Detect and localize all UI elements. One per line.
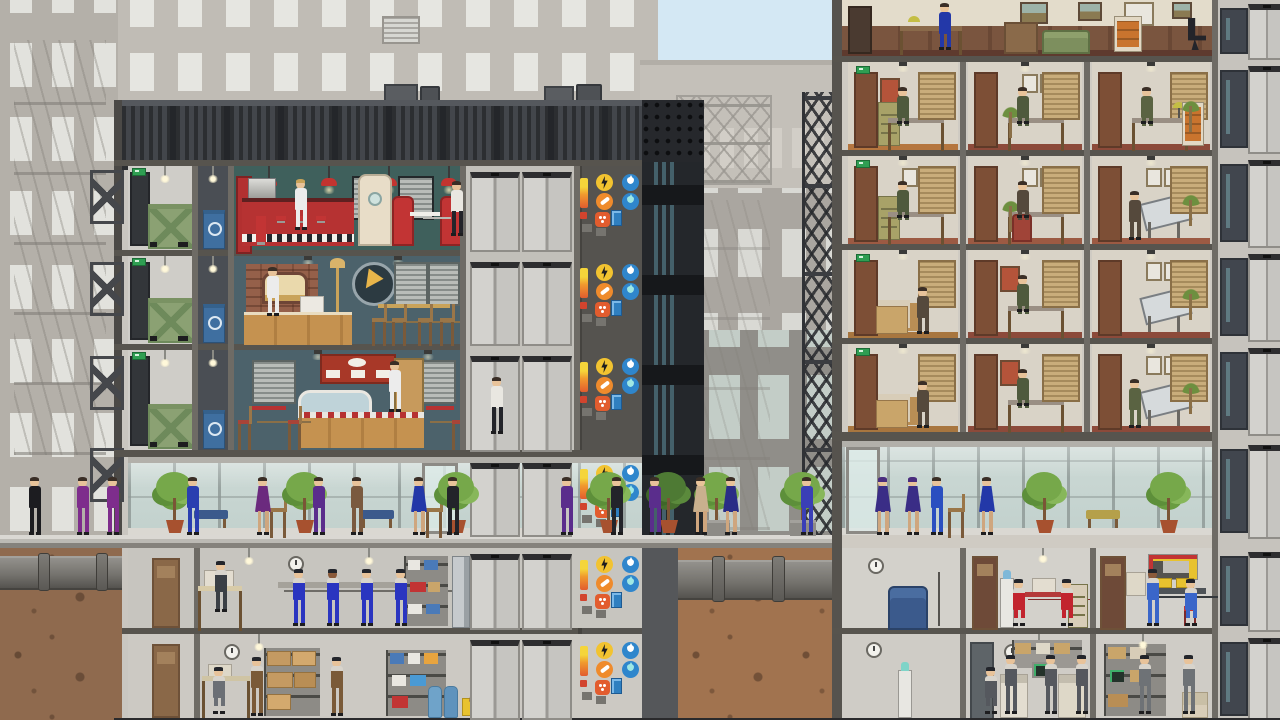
elevator-doors[interactable]	[470, 463, 520, 537]
person-part	[561, 486, 573, 508]
person-part	[986, 697, 997, 706]
person-part	[985, 676, 997, 698]
person-part	[1018, 399, 1029, 408]
person-part	[390, 391, 401, 409]
person-part	[1148, 599, 1159, 623]
person-part	[1130, 409, 1141, 425]
water-hot-icon	[622, 484, 639, 501]
worker-person[interactable]	[984, 668, 998, 714]
person-part	[649, 486, 661, 508]
power-chip	[580, 396, 587, 403]
person[interactable]	[186, 478, 200, 535]
person-part	[932, 507, 943, 532]
person-part	[1076, 664, 1088, 686]
worker-person[interactable]	[1004, 656, 1018, 714]
person-part	[1005, 664, 1017, 686]
person-part	[693, 486, 709, 512]
person-part	[1147, 578, 1159, 600]
person-part	[327, 578, 339, 600]
person-part	[414, 511, 425, 532]
worker-person[interactable]	[1075, 656, 1089, 714]
water-cold-icon	[622, 556, 639, 573]
person[interactable]	[28, 478, 42, 535]
power-chip	[580, 594, 587, 601]
water-cold-icon	[622, 174, 639, 191]
power-riser-bar	[580, 646, 588, 676]
power-icon	[596, 358, 613, 375]
person-part	[1014, 609, 1025, 618]
person-part	[802, 507, 813, 532]
power-riser-bar	[580, 560, 588, 590]
power-riser-bar	[580, 268, 588, 298]
person[interactable]	[350, 478, 364, 535]
person-part	[77, 486, 89, 508]
water-hot-icon	[622, 283, 639, 300]
person-part	[878, 478, 887, 487]
person-part	[361, 578, 373, 600]
person[interactable]	[266, 268, 280, 316]
worker-person[interactable]	[1044, 656, 1058, 714]
person[interactable]	[724, 478, 738, 535]
person-part	[294, 599, 305, 623]
palm-plant	[1176, 190, 1206, 240]
person-part	[982, 511, 993, 532]
elevator-doors[interactable]	[522, 554, 572, 630]
palm-plant	[1176, 96, 1206, 146]
utility-stack	[578, 642, 640, 704]
worker-person[interactable]	[1146, 570, 1160, 626]
elevator-doors[interactable]	[522, 640, 572, 720]
person-part	[917, 390, 929, 412]
person-part	[396, 599, 407, 623]
worker-person[interactable]	[250, 658, 264, 716]
person-part	[214, 697, 225, 706]
water-cold-icon	[622, 358, 639, 375]
person-part	[982, 478, 991, 487]
person-part	[898, 211, 909, 220]
person-part	[908, 511, 919, 532]
power-icon	[596, 174, 613, 191]
stage	[0, 0, 1280, 720]
person-part	[897, 96, 909, 118]
water-meter	[611, 210, 622, 226]
person-part	[1186, 609, 1197, 618]
person-part	[78, 507, 89, 532]
person-part	[979, 486, 995, 512]
fire-icon	[595, 680, 610, 695]
power-riser-bar	[580, 469, 588, 499]
pipe-meter	[582, 408, 592, 416]
worker-person[interactable]	[214, 562, 228, 612]
utility-stack	[578, 556, 640, 618]
power-riser-bar	[580, 362, 588, 392]
person-part	[452, 211, 463, 233]
water-cold-icon	[622, 465, 639, 482]
person-part	[296, 209, 307, 227]
worker-person[interactable]	[1060, 580, 1074, 626]
person-part	[352, 507, 363, 532]
person-part	[696, 511, 707, 532]
elevator-doors[interactable]	[522, 172, 572, 252]
person[interactable]	[896, 88, 910, 124]
person-part	[1018, 117, 1029, 126]
water-hot-icon	[622, 661, 639, 678]
person-part	[1184, 685, 1195, 711]
person-part	[696, 478, 705, 487]
person-part	[213, 676, 225, 698]
elevator-doors[interactable]	[470, 640, 520, 720]
person-part	[878, 511, 889, 532]
elevator-doors[interactable]	[470, 554, 520, 630]
person-part	[314, 507, 325, 532]
elevator-doors[interactable]	[470, 172, 520, 252]
person-part	[332, 687, 343, 713]
person-part	[1017, 284, 1029, 306]
worker-person[interactable]	[1184, 580, 1198, 626]
worker-person[interactable]	[330, 658, 344, 716]
person[interactable]	[294, 180, 308, 230]
worker-person[interactable]	[1138, 656, 1152, 714]
person-part	[801, 486, 813, 508]
power-icon	[596, 264, 613, 281]
person-part	[1061, 588, 1073, 610]
person[interactable]	[896, 182, 910, 218]
person-part	[562, 507, 573, 532]
utility-stack	[578, 465, 640, 527]
person[interactable]	[610, 478, 624, 535]
power-icon	[596, 642, 613, 659]
person-part	[611, 486, 623, 508]
person-part	[448, 507, 459, 532]
person-part	[331, 666, 343, 688]
person-part	[1130, 221, 1141, 237]
person-part	[723, 486, 739, 512]
person-part	[726, 478, 735, 487]
power-chip	[580, 302, 587, 309]
person-part	[1185, 588, 1197, 610]
person-part	[1018, 305, 1029, 314]
person-part	[492, 407, 503, 431]
person-part	[918, 317, 929, 331]
utility-stack	[578, 358, 640, 420]
fire-icon	[595, 396, 610, 411]
person-part	[414, 478, 423, 487]
person-part	[875, 486, 891, 512]
person-part	[1017, 190, 1029, 212]
person-part	[268, 297, 279, 313]
person-part	[1017, 378, 1029, 400]
person-body	[939, 12, 951, 34]
person[interactable]	[1016, 182, 1030, 218]
person-part	[216, 591, 227, 609]
person-part	[612, 507, 623, 532]
person[interactable]	[648, 478, 662, 535]
person-part	[726, 511, 737, 532]
person-part	[313, 486, 325, 508]
worker-person[interactable]	[292, 570, 306, 626]
person-part	[918, 411, 929, 425]
person[interactable]	[916, 288, 930, 334]
person-part	[1013, 588, 1025, 610]
person-part	[258, 511, 269, 532]
person-part	[108, 507, 119, 532]
person-part	[267, 276, 279, 298]
person[interactable]	[916, 382, 930, 428]
person-part	[215, 570, 227, 592]
person-part	[411, 486, 427, 512]
person-part	[395, 578, 407, 600]
water-meter	[611, 592, 622, 608]
person-part	[917, 296, 929, 318]
person-part	[1046, 685, 1057, 711]
person-part	[107, 486, 119, 508]
person[interactable]	[1128, 380, 1142, 428]
person-part	[908, 478, 917, 487]
person-part	[451, 190, 463, 212]
palm-plant	[1176, 284, 1206, 334]
person[interactable]	[694, 478, 708, 535]
person[interactable]	[1016, 370, 1030, 406]
person[interactable]	[876, 478, 890, 535]
elevator-doors[interactable]	[522, 356, 572, 452]
person-part	[251, 666, 263, 688]
person[interactable]	[938, 4, 952, 50]
phone-icon	[596, 283, 613, 300]
person[interactable]	[930, 478, 944, 535]
pipe-meter	[582, 314, 592, 322]
person[interactable]	[1016, 276, 1030, 312]
power-chip	[580, 503, 587, 510]
fire-icon	[595, 503, 610, 518]
person[interactable]	[76, 478, 90, 535]
power-chip	[580, 212, 587, 219]
fire-icon	[595, 302, 610, 317]
person-part	[1129, 388, 1141, 410]
person-part	[905, 486, 921, 512]
person-part	[252, 687, 263, 713]
person[interactable]	[388, 362, 402, 412]
utility-stack	[578, 174, 640, 236]
pipe-meter	[582, 224, 592, 232]
person-part	[1129, 200, 1141, 222]
phone-icon	[596, 193, 613, 210]
person-part	[29, 486, 41, 508]
water-hot-icon	[622, 193, 639, 210]
person-part	[30, 507, 41, 532]
fire-icon	[595, 594, 610, 609]
power-riser-bar	[580, 178, 588, 208]
person[interactable]	[980, 478, 994, 535]
person-part	[1140, 685, 1151, 711]
person[interactable]	[446, 478, 460, 535]
person-part	[258, 478, 267, 487]
person-part	[1142, 117, 1153, 126]
worker-person[interactable]	[1012, 580, 1026, 626]
worker-person[interactable]	[360, 570, 374, 626]
person-part	[351, 486, 363, 508]
person-part	[1006, 685, 1017, 711]
power-icon	[596, 556, 613, 573]
person[interactable]	[412, 478, 426, 535]
person-part	[389, 370, 401, 392]
person-part	[931, 486, 943, 508]
person-part	[255, 486, 271, 512]
person-part	[188, 507, 199, 532]
person-part	[187, 486, 199, 508]
person[interactable]	[106, 478, 120, 535]
phone-icon	[596, 661, 613, 678]
water-cold-icon	[622, 642, 639, 659]
person-part	[1141, 96, 1153, 118]
generated-layer	[0, 0, 1280, 720]
person-part	[1183, 664, 1195, 686]
person[interactable]	[1016, 88, 1030, 124]
water-cold-icon	[622, 264, 639, 281]
person-part	[295, 188, 307, 210]
pipe-meter	[582, 606, 592, 614]
water-meter	[611, 678, 622, 694]
person-part	[328, 599, 339, 623]
water-meter	[611, 300, 622, 316]
water-hot-icon	[622, 575, 639, 592]
elevator-doors[interactable]	[470, 262, 520, 346]
pipe-meter	[582, 515, 592, 523]
phone-icon	[596, 575, 613, 592]
person-part	[491, 386, 503, 408]
person[interactable]	[312, 478, 326, 535]
elevator-doors[interactable]	[522, 262, 572, 346]
person-part	[1018, 211, 1029, 220]
pipe-meter	[582, 692, 592, 700]
person-part	[650, 507, 661, 532]
person[interactable]	[1128, 192, 1142, 240]
water-meter	[611, 394, 622, 410]
person[interactable]	[490, 378, 504, 434]
person-part	[1077, 685, 1088, 711]
phone-icon	[596, 377, 613, 394]
person[interactable]	[1140, 88, 1154, 124]
person-part	[1045, 664, 1057, 686]
water-hot-icon	[622, 377, 639, 394]
person-part	[1017, 96, 1029, 118]
person[interactable]	[450, 182, 464, 236]
person[interactable]	[800, 478, 814, 535]
person-part	[897, 190, 909, 212]
worker-person[interactable]	[394, 570, 408, 626]
palm-plant	[1176, 378, 1206, 428]
person-part	[898, 117, 909, 126]
power-chip	[580, 680, 587, 687]
person[interactable]	[256, 478, 270, 535]
person-part	[1062, 609, 1073, 618]
fire-icon	[595, 212, 610, 227]
utility-stack	[578, 264, 640, 326]
person-part	[447, 486, 459, 508]
person-part	[1139, 664, 1151, 686]
person[interactable]	[906, 478, 920, 535]
person-part	[293, 578, 305, 600]
worker-person[interactable]	[212, 668, 226, 714]
worker-person[interactable]	[326, 570, 340, 626]
person[interactable]	[560, 478, 574, 535]
worker-person[interactable]	[1182, 656, 1196, 714]
person-part	[362, 599, 373, 623]
person-legs	[940, 33, 951, 47]
